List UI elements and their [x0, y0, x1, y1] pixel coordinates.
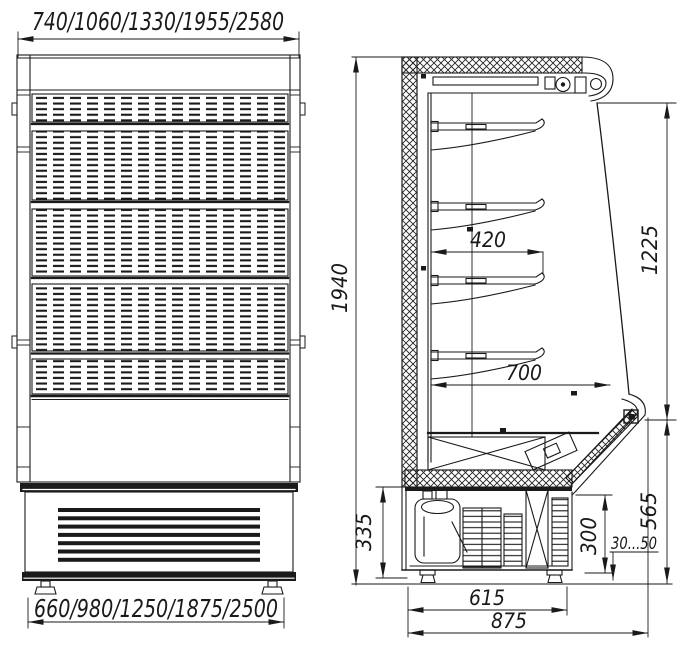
machine-compartment-height-label: 335 [352, 513, 376, 551]
bumper-height-label: 565 [637, 492, 661, 530]
foot [262, 581, 283, 594]
side-view: 1940 420 700 1225 335 300 30...50 565 61… [328, 57, 676, 637]
glass-front [597, 103, 629, 394]
perforated-back-panel [32, 94, 288, 394]
opening-height-label: 1225 [638, 225, 662, 275]
overall-depth-label: 875 [491, 609, 527, 633]
air-duct [428, 432, 598, 470]
compressor [415, 489, 467, 563]
opening-depth-label: 700 [506, 361, 542, 385]
overall-width-label: 740/1060/1330/1955/2580 [32, 7, 284, 36]
light-channel [433, 77, 538, 85]
ventilation-grille [58, 508, 260, 562]
shelf [431, 119, 544, 150]
front-view: 740/1060/1330/1955/2580 [12, 7, 305, 628]
back-wall [402, 57, 577, 570]
overall-height-label: 1940 [328, 263, 352, 313]
front-feet [35, 581, 283, 594]
cabinet-dimensional-drawing: 740/1060/1330/1955/2580 [0, 0, 685, 653]
cross-braced-panel [526, 490, 548, 568]
machine-compartment [402, 487, 572, 583]
shelf [431, 199, 544, 230]
base-width-label: 660/980/1250/1875/2500 [34, 594, 278, 623]
side-feet [420, 570, 562, 583]
condenser-height-label: 300 [577, 517, 601, 555]
foot [35, 581, 56, 594]
technical-drawing-page: 740/1060/1330/1955/2580 [0, 0, 685, 653]
shelf-depth-label: 420 [470, 228, 506, 252]
plinth [22, 492, 296, 581]
foot-adjustment-label: 30...50 [611, 534, 657, 554]
feet-span-label: 615 [469, 586, 505, 610]
condenser [463, 508, 522, 568]
front-bumper [20, 483, 298, 492]
section-marks [421, 74, 577, 433]
shelf [431, 273, 544, 304]
foot [420, 570, 435, 583]
compartment-louver [552, 498, 568, 566]
fan-unit [525, 432, 577, 470]
cabinet-body [12, 55, 305, 482]
foot [547, 570, 562, 583]
